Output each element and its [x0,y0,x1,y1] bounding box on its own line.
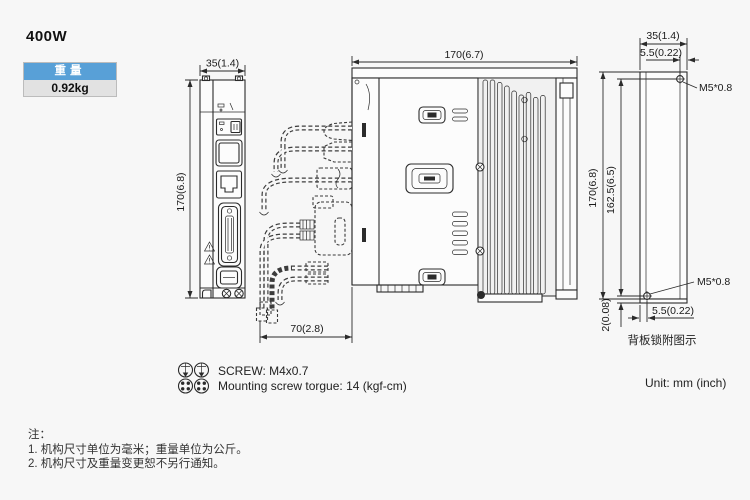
screw-head-icon [179,379,193,393]
side-width-dim-label: 170(6.7) [444,49,483,61]
model-title: 400W [26,28,67,45]
unit-label: Unit: mm (inch) [645,376,726,390]
back-view-drawing: M5*0.8 M5*0.8 35(1.4) 5.5(0.22) 170(6.8)… [587,30,732,332]
screw-torque-line: Mounting screw torgue: 14 (kgf-cm) [218,379,407,393]
note-line: 1. 机构尺寸单位为毫米；重量单位为公斤。 [28,443,248,458]
notes-header: 注： [28,428,248,443]
screw-spec-line: SCREW: M4x0.7 [218,364,308,378]
side-bottom-connector [377,285,423,292]
page: 35(1.4) 170(6.8) [0,0,750,500]
screw-note-icons [179,363,209,393]
weight-badge-value: 0.92kg [24,80,116,96]
cable-clearance-dim-label: 70(2.8) [290,323,323,335]
back-bottom-screw-spec-label: M5*0.8 [697,276,730,288]
weight-badge-header: 重量 [24,63,116,80]
side-back-bracket [556,78,577,299]
front-width-dim-label: 35(1.4) [206,58,239,70]
back-top-screw-spec-label: M5*0.8 [699,82,732,94]
weight-badge: 重量 0.92kg [23,62,117,97]
back-bottom-screw-offset-label: 5.5(0.22) [652,305,694,317]
note-line: 2. 机构尺寸及重量变更恕不另行通知。 [28,457,248,472]
notes-block: 注： 1. 机构尺寸单位为毫米；重量单位为公斤。 2. 机构尺寸及重量变更恕不另… [28,428,248,472]
screw-top-view-icon [179,363,193,377]
back-lip-dim-label: 2(0.08) [600,298,612,331]
cable-pin-blocks [300,220,314,240]
back-height-dim-label: 170(6.8) [587,168,599,207]
back-width-dim-label: 35(1.4) [646,30,679,42]
screw-top-view-icon [195,363,209,377]
back-hole-span-dim-label: 162.5(6.5) [605,166,617,214]
side-view-drawing: 170(6.7) 70(2.8) [257,49,578,343]
back-view-dimensions-top: 35(1.4) 5.5(0.22) [640,30,699,74]
screw-head-icon [195,379,209,393]
back-panel-caption: 背板锁附图示 [604,332,720,348]
front-view-drawing: 35(1.4) 170(6.8) [175,58,245,299]
front-height-dim-label: 170(6.8) [175,172,187,211]
motor-cables [257,122,353,323]
back-top-screw-offset-label: 5.5(0.22) [640,47,682,59]
